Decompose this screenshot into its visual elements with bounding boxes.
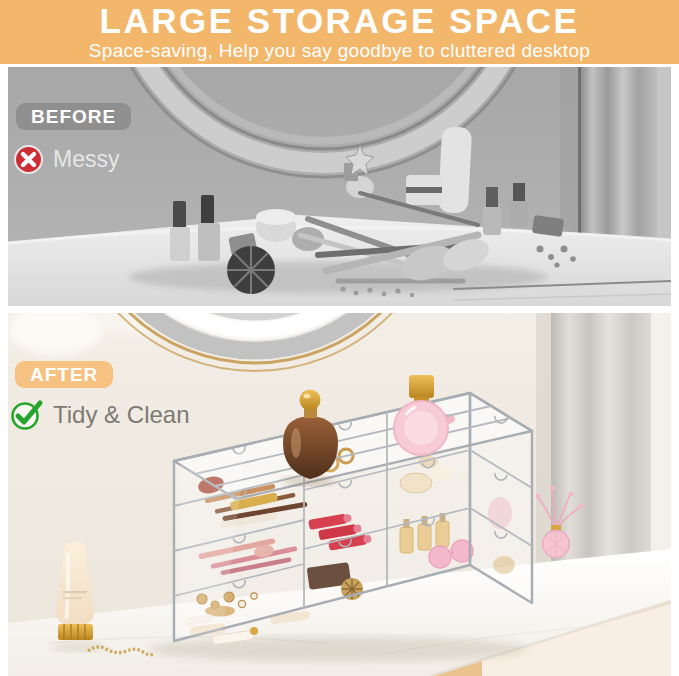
before-photo: BEFORE Messy bbox=[8, 67, 671, 306]
check-circle-icon bbox=[10, 398, 44, 432]
before-caption-row: Messy bbox=[13, 144, 119, 175]
after-photo: AFTER Tidy & Clean bbox=[8, 313, 671, 676]
product-infographic: LARGE STORAGE SPACE Space-saving, Help y… bbox=[0, 0, 679, 676]
x-circle-icon bbox=[13, 144, 44, 175]
after-caption: Tidy & Clean bbox=[53, 403, 190, 427]
after-badge: AFTER bbox=[15, 361, 113, 388]
after-caption-row: Tidy & Clean bbox=[10, 398, 190, 432]
before-badge: BEFORE bbox=[16, 103, 131, 130]
page-title: LARGE STORAGE SPACE bbox=[0, 0, 679, 38]
organizer-shadow bbox=[148, 636, 528, 662]
before-caption: Messy bbox=[53, 148, 119, 171]
page-subtitle: Space-saving, Help you say goodbye to cl… bbox=[0, 38, 679, 62]
header-banner: LARGE STORAGE SPACE Space-saving, Help y… bbox=[0, 0, 679, 64]
